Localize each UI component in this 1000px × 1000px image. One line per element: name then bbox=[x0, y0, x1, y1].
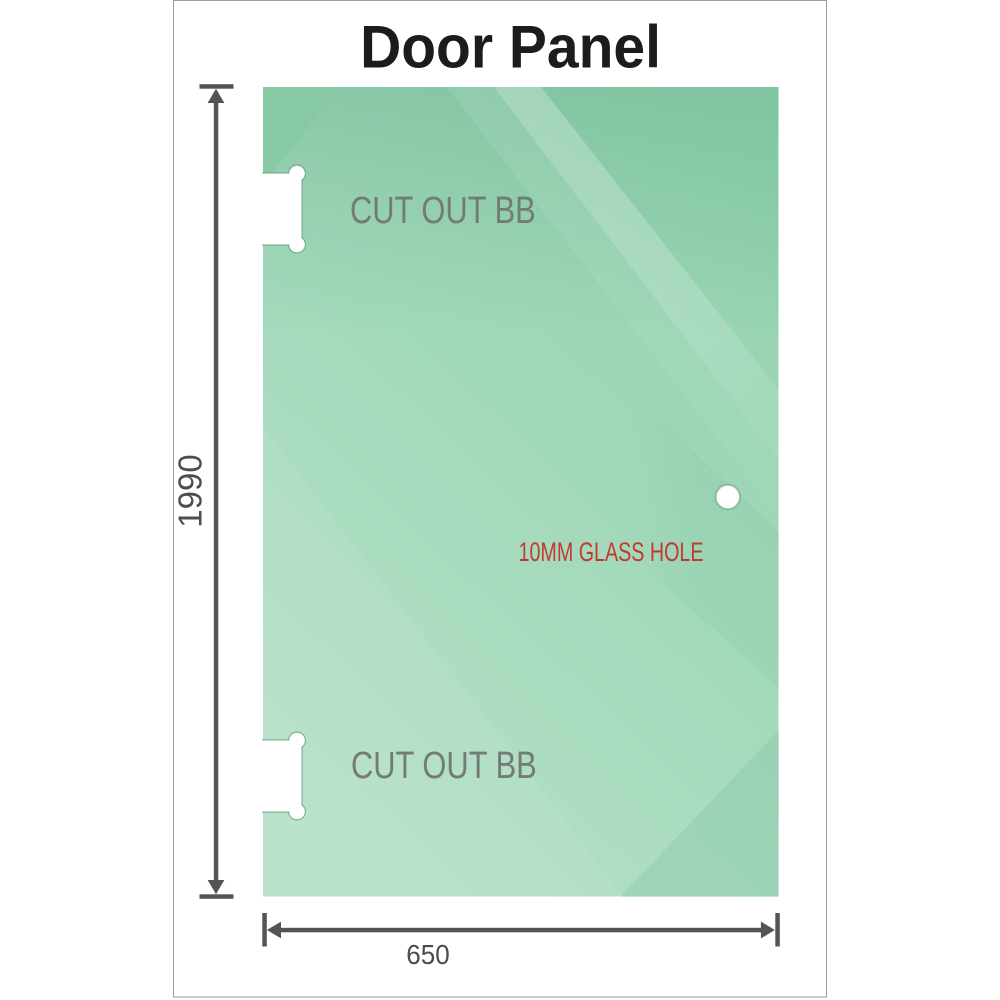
svg-text:10MM GLASS HOLE: 10MM GLASS HOLE bbox=[518, 538, 703, 568]
svg-text:CUT OUT BB: CUT OUT BB bbox=[350, 190, 536, 232]
svg-text:CUT OUT BB: CUT OUT BB bbox=[351, 745, 537, 787]
svg-text:1990: 1990 bbox=[172, 454, 209, 527]
svg-text:650: 650 bbox=[406, 939, 449, 970]
svg-text:Door Panel: Door Panel bbox=[360, 14, 661, 81]
